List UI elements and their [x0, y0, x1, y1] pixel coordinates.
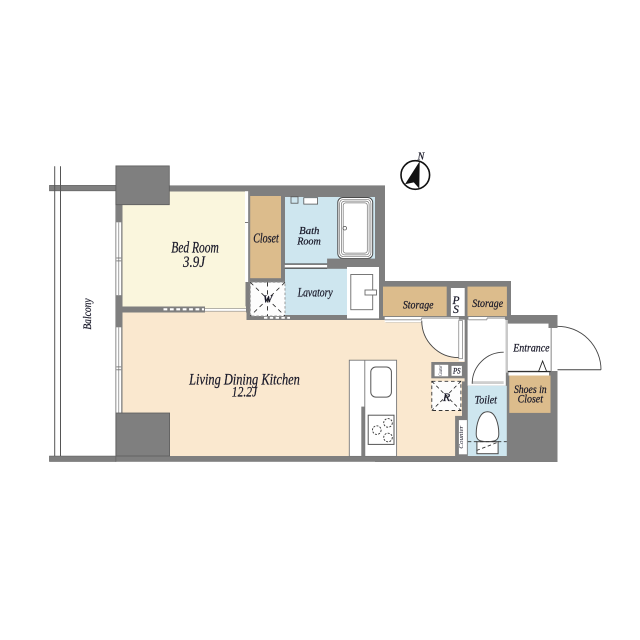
svg-text:W: W — [263, 295, 274, 306]
svg-text:Storage: Storage — [403, 299, 434, 311]
svg-text:Toilet: Toilet — [475, 392, 498, 406]
svg-text:Entrance: Entrance — [512, 341, 550, 355]
svg-text:Bath: Bath — [299, 226, 319, 237]
svg-text:N: N — [417, 152, 426, 163]
svg-text:3.9J: 3.9J — [182, 254, 205, 271]
svg-text:Balcony: Balcony — [80, 298, 94, 330]
svg-text:12.2J: 12.2J — [232, 385, 258, 401]
svg-text:Closet: Closet — [518, 392, 544, 406]
svg-text:R: R — [442, 390, 451, 404]
svg-text:Lavatory: Lavatory — [297, 286, 333, 300]
svg-text:Counter: Counter — [438, 365, 444, 376]
svg-text:S: S — [453, 304, 459, 316]
svg-text:PS: PS — [452, 366, 461, 376]
svg-text:Room: Room — [296, 237, 321, 248]
svg-text:Storage: Storage — [472, 298, 503, 310]
svg-text:Counter: Counter — [458, 425, 465, 449]
svg-text:Closet: Closet — [253, 231, 279, 246]
